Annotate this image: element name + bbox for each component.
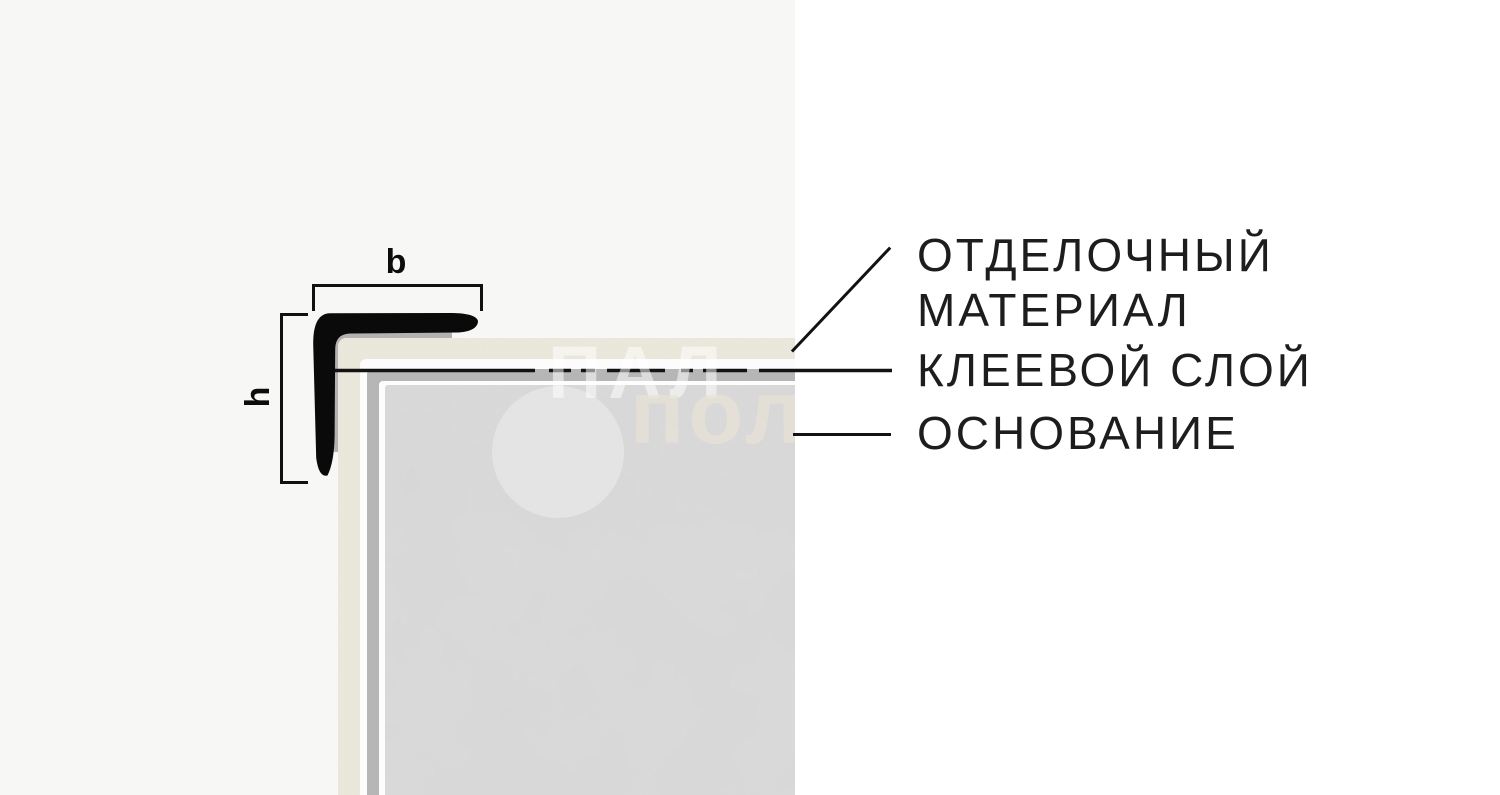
diagram-canvas: ПАЛ пол b h ОТДЕЛОЧНЫЙ МАТЕРИАЛ КЛЕЕВОЙ … [0,0,1500,795]
leader-line-finishing [791,247,892,353]
callout-finishing-line1: ОТДЕЛОЧНЫЙ [917,228,1274,283]
base-concrete-layer [385,385,795,795]
callout-finishing-line2: МАТЕРИАЛ [917,283,1274,338]
callout-finishing-material: ОТДЕЛОЧНЫЙ МАТЕРИАЛ [917,228,1274,338]
dimension-bracket-h [280,313,308,484]
leader-line-adhesive [335,368,895,373]
dimension-bracket-b [312,284,483,311]
leader-line-base [793,433,891,436]
concrete-texture [385,385,795,795]
layer-stack [0,0,795,795]
callout-adhesive-layer: КЛЕЕВОЙ СЛОЙ [917,347,1313,393]
dimension-label-h: h [238,377,278,417]
callout-base-substrate: ОСНОВАНИЕ [917,410,1239,456]
dimension-label-b: b [312,243,480,282]
